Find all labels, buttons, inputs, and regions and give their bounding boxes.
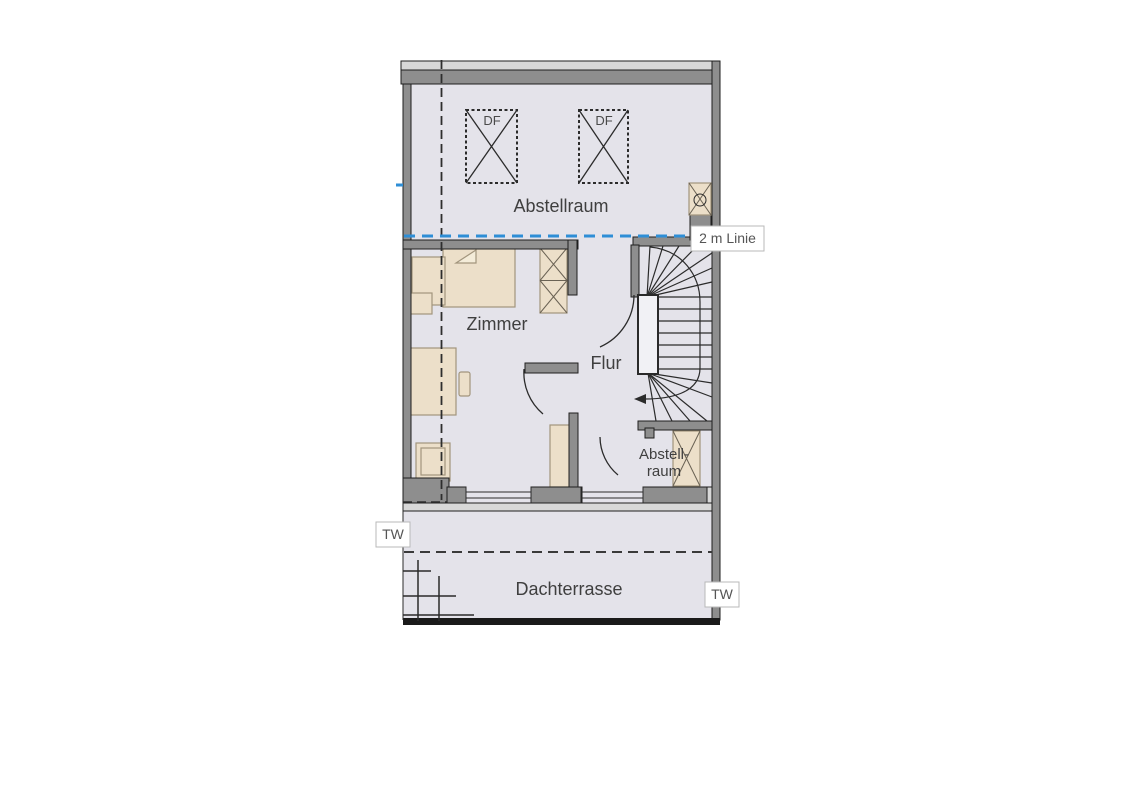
df-label-1: DF <box>483 113 500 128</box>
floorplan-page: 2 m Linie TW TW Abstellraum Zimmer Flur … <box>0 0 1123 794</box>
stair-newel <box>638 295 658 374</box>
room-label-abstellraum-small-1: Abstell- <box>639 446 689 463</box>
wall-stub-doorway-left <box>568 240 577 295</box>
desk <box>409 348 456 415</box>
room-label-abstellraum-small-2: raum <box>647 463 681 480</box>
terrace-bottom-edge <box>403 618 720 625</box>
wall-zimmer-east-lower <box>569 413 578 489</box>
dresser <box>550 425 570 487</box>
terrace-parapet-strip <box>403 503 712 511</box>
room-label-abstellraum: Abstellraum <box>513 196 608 216</box>
tag-2m-linie-label: 2 m Linie <box>699 230 756 246</box>
room-label-dachterrasse: Dachterrasse <box>515 579 622 599</box>
room-label-zimmer: Zimmer <box>467 314 528 334</box>
room-label-flur: Flur <box>591 353 622 373</box>
chimney-upper <box>689 183 711 215</box>
desk-chair <box>459 372 470 396</box>
tag-tw-left: TW <box>376 522 410 547</box>
terrace-floor <box>403 503 720 623</box>
attic-floorplan: 2 m Linie TW TW Abstellraum Zimmer Flur … <box>370 55 770 630</box>
wall-stair-left <box>631 245 639 297</box>
wall-top-light-strip <box>401 61 719 70</box>
wall-small-door-stub <box>645 428 654 438</box>
tag-tw-right: TW <box>705 582 739 607</box>
nightstand-small <box>409 293 432 314</box>
df-label-2: DF <box>595 113 612 128</box>
tag-tw-right-label: TW <box>711 586 734 602</box>
pier-left <box>447 487 466 503</box>
wall-right <box>712 61 720 620</box>
floors <box>403 62 720 623</box>
wall-left <box>403 84 411 503</box>
wall-flur-stub <box>525 363 578 373</box>
wall-zimmer-top <box>403 240 578 249</box>
pier-middle <box>531 487 582 503</box>
tag-tw-left-label: TW <box>382 526 405 542</box>
armchair <box>416 443 450 481</box>
wardrobe <box>540 248 567 313</box>
wall-top <box>401 70 717 84</box>
pier-right <box>643 487 707 503</box>
tag-2m-linie: 2 m Linie <box>691 226 764 251</box>
bed <box>443 245 515 307</box>
pier-right-light <box>707 487 712 503</box>
